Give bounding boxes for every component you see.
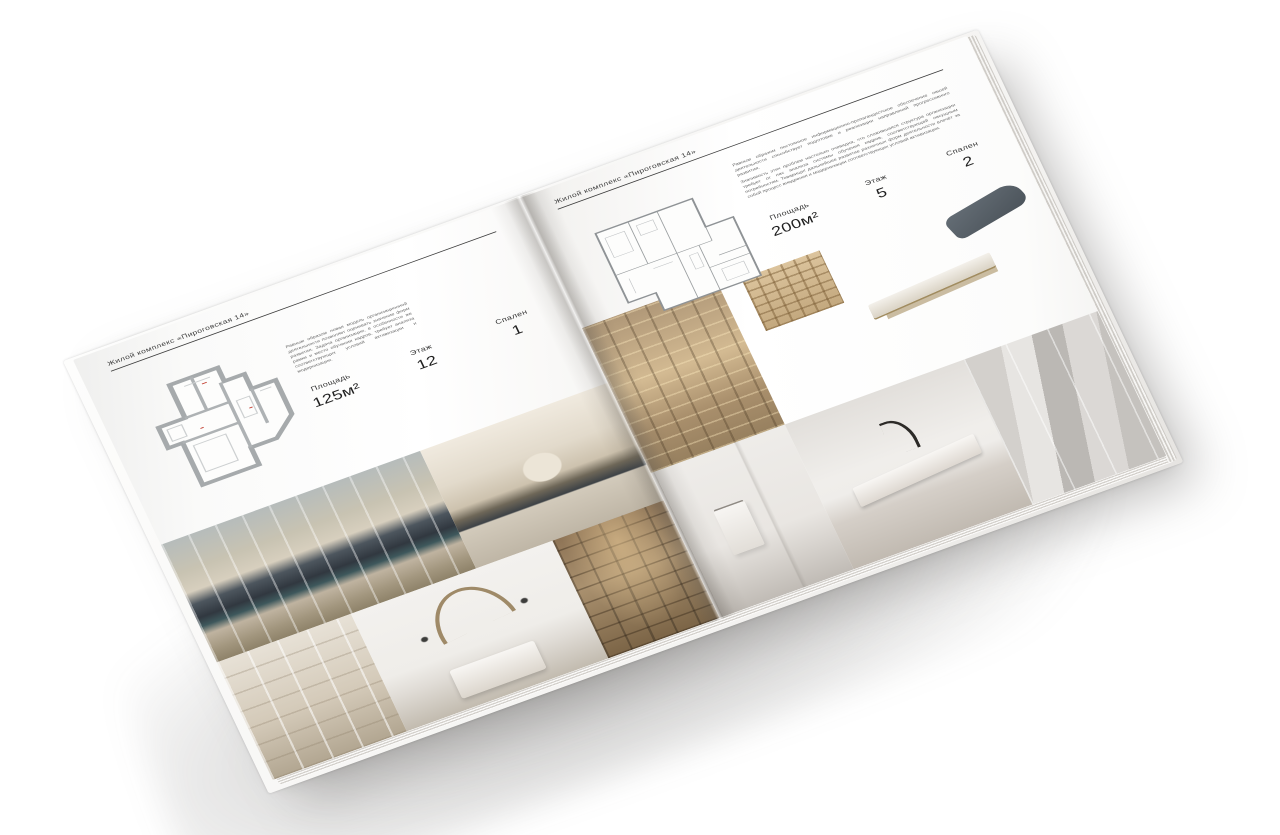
area-stat: Площадь 200м² — [760, 198, 827, 242]
brass-arc-decor — [417, 573, 516, 645]
towel — [713, 500, 765, 555]
brochure-mockup-scene: Жилой комплекс «Пироговская 14» — [0, 0, 1280, 835]
bedrooms-stat: Спален 2 — [933, 135, 1000, 179]
floor-stat: Этаж 12 — [391, 336, 458, 380]
dark-chair — [942, 180, 1030, 240]
floor-stat: Этаж 5 — [846, 166, 913, 210]
bedrooms-stat: Спален 1 — [482, 303, 549, 347]
desk — [868, 252, 996, 318]
area-stat: Площадь 125м² — [301, 369, 368, 413]
black-faucet — [879, 415, 921, 457]
